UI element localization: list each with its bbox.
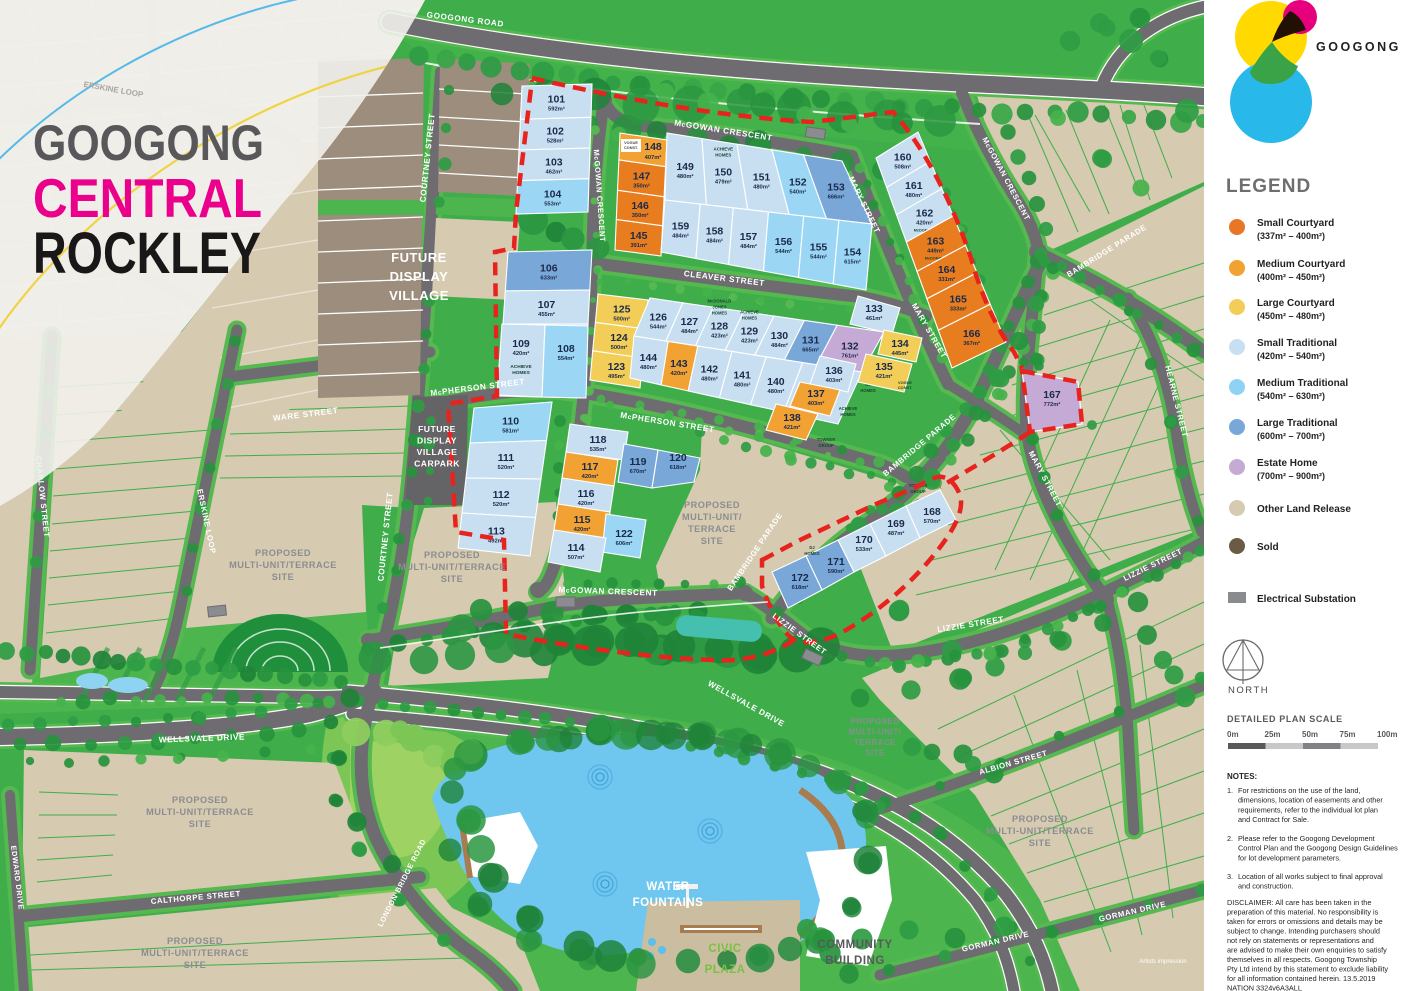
svg-text:preparation of this material.: preparation of this material. No respons… <box>1227 908 1379 917</box>
svg-text:123: 123 <box>608 361 626 373</box>
svg-text:129: 129 <box>741 325 759 337</box>
svg-text:148: 148 <box>644 141 662 153</box>
svg-text:111: 111 <box>498 452 515 464</box>
svg-text:ACHIEVE: ACHIEVE <box>839 406 858 411</box>
svg-text:153: 153 <box>827 182 845 194</box>
svg-text:2.: 2. <box>1227 834 1233 843</box>
svg-text:McDONALD: McDONALD <box>708 299 732 304</box>
svg-text:520m²: 520m² <box>498 464 515 471</box>
svg-text:ACHIEVE: ACHIEVE <box>510 364 532 370</box>
svg-text:are advised to make their own: are advised to make their own enquiries … <box>1227 946 1387 955</box>
svg-text:HOMES: HOMES <box>742 315 758 320</box>
svg-text:131: 131 <box>802 335 820 347</box>
svg-text:(600m² – 700m²): (600m² – 700m²) <box>1257 431 1325 441</box>
svg-text:SITE: SITE <box>701 536 723 546</box>
svg-text:and Contract for Sale.: and Contract for Sale. <box>1238 815 1309 824</box>
svg-text:108: 108 <box>557 343 575 355</box>
svg-text:127: 127 <box>681 316 699 328</box>
svg-text:BUILDING: BUILDING <box>825 955 885 967</box>
svg-text:DETAILED PLAN SCALE: DETAILED PLAN SCALE <box>1227 714 1343 724</box>
svg-text:403m²: 403m² <box>826 377 843 384</box>
svg-text:500m²: 500m² <box>611 344 628 351</box>
svg-text:ACHIEVE: ACHIEVE <box>740 309 759 314</box>
svg-text:GROUP: GROUP <box>910 489 926 494</box>
svg-text:142: 142 <box>701 364 719 376</box>
svg-text:420m²: 420m² <box>916 219 933 226</box>
svg-text:137: 137 <box>807 388 825 400</box>
svg-text:134: 134 <box>891 338 909 350</box>
svg-text:(540m² – 630m²): (540m² – 630m²) <box>1257 391 1325 401</box>
svg-text:423m²: 423m² <box>741 337 758 344</box>
svg-text:100m: 100m <box>1377 730 1397 739</box>
svg-text:166: 166 <box>963 328 981 340</box>
svg-text:500m²: 500m² <box>613 315 630 322</box>
svg-text:ROCKLEY: ROCKLEY <box>33 221 261 286</box>
svg-text:535m²: 535m² <box>590 446 607 453</box>
svg-text:151: 151 <box>753 172 771 184</box>
svg-text:VILLAGE: VILLAGE <box>417 447 458 457</box>
svg-text:(450m² – 480m²): (450m² – 480m²) <box>1257 311 1325 321</box>
svg-text:taken for errors or omissions: taken for errors or omissions and detail… <box>1227 917 1383 926</box>
svg-text:484m²: 484m² <box>706 238 723 245</box>
svg-text:420m²: 420m² <box>578 500 595 507</box>
svg-text:462m²: 462m² <box>546 168 563 175</box>
svg-text:PROPOSED: PROPOSED <box>167 936 223 946</box>
svg-text:Artists impression: Artists impression <box>1139 959 1186 965</box>
svg-text:VILLAGE: VILLAGE <box>389 288 449 303</box>
svg-text:110: 110 <box>502 415 519 427</box>
svg-text:544m²: 544m² <box>775 248 792 255</box>
svg-text:MULTI-UNIT/TERRACE: MULTI-UNIT/TERRACE <box>229 560 337 570</box>
svg-text:162: 162 <box>916 207 934 219</box>
svg-text:WATER: WATER <box>646 881 689 893</box>
svg-text:CENTRAL: CENTRAL <box>33 167 262 229</box>
svg-text:570m²: 570m² <box>924 518 941 525</box>
svg-text:479m²: 479m² <box>715 178 732 185</box>
svg-text:553m²: 553m² <box>544 200 561 207</box>
svg-text:423m²: 423m² <box>711 333 728 340</box>
svg-text:533m²: 533m² <box>856 546 873 553</box>
svg-text:TERRACE: TERRACE <box>688 524 736 534</box>
svg-text:(700m² – 900m²): (700m² – 900m²) <box>1257 471 1325 481</box>
svg-text:(337m² – 400m²): (337m² – 400m²) <box>1257 231 1325 241</box>
svg-text:124: 124 <box>610 332 628 344</box>
svg-text:50m: 50m <box>1302 730 1318 739</box>
svg-text:170: 170 <box>855 534 873 546</box>
svg-text:156: 156 <box>775 236 793 248</box>
svg-text:480m²: 480m² <box>753 184 770 191</box>
svg-text:544m²: 544m² <box>810 253 827 260</box>
svg-text:HOMES: HOMES <box>512 370 530 376</box>
svg-text:146: 146 <box>631 200 649 212</box>
svg-text:480m²: 480m² <box>734 382 751 389</box>
svg-text:152: 152 <box>789 176 807 188</box>
svg-text:116: 116 <box>578 488 595 500</box>
svg-text:420m²: 420m² <box>582 473 599 480</box>
svg-text:103: 103 <box>545 156 563 168</box>
svg-text:126: 126 <box>649 311 667 323</box>
svg-text:143: 143 <box>670 358 688 370</box>
svg-text:HOMES: HOMES <box>860 388 876 393</box>
svg-text:JONES: JONES <box>712 305 726 310</box>
svg-text:DJ: DJ <box>809 545 815 550</box>
svg-text:164: 164 <box>938 264 956 276</box>
svg-text:484m²: 484m² <box>740 243 757 250</box>
svg-text:MULTI-UNIT/TERRACE: MULTI-UNIT/TERRACE <box>986 826 1094 836</box>
svg-text:484m²: 484m² <box>672 233 689 240</box>
svg-text:480m²: 480m² <box>905 192 922 199</box>
svg-text:420m²: 420m² <box>574 526 591 533</box>
svg-text:Please refer to the Googong De: Please refer to the Googong Development <box>1238 834 1375 843</box>
svg-text:135: 135 <box>875 361 893 373</box>
svg-text:507m²: 507m² <box>568 554 585 561</box>
svg-text:449m²: 449m² <box>927 248 944 255</box>
svg-text:SITE: SITE <box>441 574 463 584</box>
svg-text:350m²: 350m² <box>632 212 649 219</box>
svg-text:391m²: 391m² <box>630 242 647 249</box>
svg-text:633m²: 633m² <box>540 275 557 282</box>
svg-text:420m²: 420m² <box>671 370 688 377</box>
svg-text:HOMES: HOMES <box>712 311 728 316</box>
svg-text:0m: 0m <box>1227 730 1239 739</box>
svg-text:445m²: 445m² <box>892 350 909 357</box>
svg-text:149: 149 <box>676 161 694 173</box>
svg-text:PLAZA: PLAZA <box>705 964 746 976</box>
svg-text:132: 132 <box>841 341 859 353</box>
svg-text:138: 138 <box>783 412 801 424</box>
svg-text:508m²: 508m² <box>894 164 911 171</box>
svg-text:117: 117 <box>582 461 599 473</box>
svg-text:HOMES: HOMES <box>840 412 856 417</box>
svg-text:104: 104 <box>544 188 562 200</box>
svg-text:For restrictions on the use of: For restrictions on the use of the land, <box>1238 786 1361 795</box>
svg-text:PROPOSED: PROPOSED <box>850 717 899 726</box>
svg-text:HOMES: HOMES <box>715 152 731 157</box>
svg-text:Pty Ltd intend by this stateme: Pty Ltd intend by this statement to excl… <box>1227 965 1388 974</box>
svg-text:159: 159 <box>672 221 690 233</box>
svg-text:MULTI-UNIT/TERRACE: MULTI-UNIT/TERRACE <box>146 807 254 817</box>
svg-text:495m²: 495m² <box>608 373 625 380</box>
svg-text:420m²: 420m² <box>513 350 530 357</box>
svg-text:331m²: 331m² <box>938 276 955 283</box>
svg-text:TERRACE: TERRACE <box>854 738 896 747</box>
svg-text:107: 107 <box>538 299 556 311</box>
svg-text:615m²: 615m² <box>844 259 861 266</box>
svg-text:for lot development parameters: for lot development parameters. <box>1238 853 1341 862</box>
svg-text:ACHIEVE: ACHIEVE <box>714 146 734 151</box>
svg-text:618m²: 618m² <box>670 464 687 471</box>
svg-text:520m²: 520m² <box>493 501 510 508</box>
svg-text:MULTI-UNIT/TERRACE: MULTI-UNIT/TERRACE <box>398 562 506 572</box>
svg-text:171: 171 <box>827 556 845 568</box>
svg-text:VOGUE: VOGUE <box>624 141 638 145</box>
svg-text:172: 172 <box>791 572 809 584</box>
svg-text:147: 147 <box>633 170 651 182</box>
svg-text:NATION 3324v6A3ALL: NATION 3324v6A3ALL <box>1227 984 1302 991</box>
svg-text:NOTES:: NOTES: <box>1227 772 1257 781</box>
svg-text:not rely on statements or repr: not rely on statements or representation… <box>1227 936 1374 945</box>
svg-text:528m²: 528m² <box>547 138 564 145</box>
svg-text:MULTI-UNIT/TERRACE: MULTI-UNIT/TERRACE <box>141 948 249 958</box>
svg-text:160: 160 <box>894 152 912 164</box>
svg-text:106: 106 <box>540 263 558 275</box>
svg-text:GROUP: GROUP <box>818 443 834 448</box>
svg-text:461m²: 461m² <box>866 315 883 322</box>
svg-text:118: 118 <box>590 434 607 446</box>
svg-text:(400m² – 450m²): (400m² – 450m²) <box>1257 272 1325 282</box>
svg-text:DISPLAY: DISPLAY <box>390 269 449 284</box>
svg-text:140: 140 <box>767 376 785 388</box>
svg-text:480m²: 480m² <box>701 376 718 383</box>
svg-text:128: 128 <box>711 321 729 333</box>
svg-text:SITE: SITE <box>1029 838 1051 848</box>
svg-text:581m²: 581m² <box>502 427 519 434</box>
svg-text:GOOGONG: GOOGONG <box>1316 40 1401 54</box>
svg-text:requirements, refer to the ind: requirements, refer to the individual lo… <box>1238 805 1378 814</box>
svg-text:480m²: 480m² <box>640 364 657 371</box>
svg-text:SITE: SITE <box>189 819 211 829</box>
svg-text:CIVIC: CIVIC <box>708 943 741 955</box>
svg-text:540m²: 540m² <box>789 188 806 195</box>
svg-text:115: 115 <box>574 514 591 526</box>
svg-text:Estate Home: Estate Home <box>1257 458 1318 469</box>
svg-text:3.: 3. <box>1227 872 1233 881</box>
svg-text:125: 125 <box>613 303 631 315</box>
svg-text:dimensions, location of easeme: dimensions, location of easements and ot… <box>1238 796 1383 805</box>
svg-text:CARPARK: CARPARK <box>414 459 460 469</box>
svg-text:421m²: 421m² <box>784 424 801 431</box>
svg-text:161: 161 <box>905 180 923 192</box>
svg-text:155: 155 <box>810 241 828 253</box>
svg-text:DISCLAIMER: All care has been: DISCLAIMER: All care has been taken in t… <box>1227 898 1371 907</box>
svg-text:119: 119 <box>630 456 647 468</box>
svg-text:PROPOSED: PROPOSED <box>684 500 740 510</box>
svg-text:618m²: 618m² <box>792 584 809 591</box>
svg-text:403m²: 403m² <box>808 400 825 407</box>
svg-text:670m²: 670m² <box>630 468 647 475</box>
svg-text:CONST.: CONST. <box>898 385 912 390</box>
svg-text:HOMES: HOMES <box>804 551 820 556</box>
svg-text:666m²: 666m² <box>828 194 845 201</box>
svg-text:168: 168 <box>923 506 941 518</box>
svg-text:455m²: 455m² <box>538 311 555 318</box>
svg-text:167: 167 <box>1043 389 1061 401</box>
svg-text:Location of all works subject: Location of all works subject to final a… <box>1238 872 1383 881</box>
svg-text:SITE: SITE <box>272 572 294 582</box>
svg-text:FOUNTAINS: FOUNTAINS <box>633 897 704 909</box>
svg-text:114: 114 <box>568 542 585 554</box>
svg-text:75m: 75m <box>1340 730 1356 739</box>
svg-text:606m²: 606m² <box>616 540 633 547</box>
svg-text:484m²: 484m² <box>771 342 788 349</box>
svg-text:CONST.: CONST. <box>624 146 638 150</box>
svg-text:Small Traditional: Small Traditional <box>1257 338 1337 349</box>
svg-text:590m²: 590m² <box>828 568 845 575</box>
svg-text:421m²: 421m² <box>876 373 893 380</box>
svg-text:136: 136 <box>825 365 843 377</box>
svg-text:Other Land Release: Other Land Release <box>1257 504 1351 515</box>
svg-text:101: 101 <box>548 94 566 106</box>
svg-text:PROPOSED: PROPOSED <box>255 548 311 558</box>
svg-text:NORTH: NORTH <box>1228 685 1269 696</box>
svg-text:subject to change. Intending p: subject to change. Intending purchasers … <box>1227 927 1380 936</box>
svg-text:772m²: 772m² <box>1044 401 1061 408</box>
svg-text:PROPOSED: PROPOSED <box>424 550 480 560</box>
svg-text:158: 158 <box>706 226 724 238</box>
svg-text:112: 112 <box>493 489 510 501</box>
svg-text:PROPOSED: PROPOSED <box>172 795 228 805</box>
svg-text:163: 163 <box>927 236 945 248</box>
svg-text:133: 133 <box>865 303 883 315</box>
svg-text:PROPOSED: PROPOSED <box>1012 814 1068 824</box>
svg-text:Control Plan and the Googong D: Control Plan and the Googong Design Guid… <box>1238 844 1398 853</box>
svg-text:TOWNER: TOWNER <box>817 437 836 442</box>
svg-text:GOOGONG: GOOGONG <box>33 115 264 171</box>
svg-text:122: 122 <box>615 528 633 540</box>
svg-text:407m²: 407m² <box>645 154 662 161</box>
svg-text:333m²: 333m² <box>950 306 967 313</box>
svg-text:165: 165 <box>949 294 967 306</box>
svg-text:367m²: 367m² <box>963 340 980 347</box>
svg-text:150: 150 <box>715 166 733 178</box>
svg-text:154: 154 <box>844 247 862 259</box>
svg-text:484m²: 484m² <box>681 328 698 335</box>
svg-text:for all information contained: for all information contained herein. 13… <box>1227 974 1375 983</box>
svg-text:Large Courtyard: Large Courtyard <box>1257 298 1335 309</box>
svg-text:141: 141 <box>733 370 751 382</box>
svg-text:169: 169 <box>887 518 905 530</box>
svg-text:25m: 25m <box>1265 730 1281 739</box>
svg-text:and construction.: and construction. <box>1238 882 1294 891</box>
svg-text:120: 120 <box>669 452 687 464</box>
svg-text:480m²: 480m² <box>768 388 785 395</box>
svg-text:480m²: 480m² <box>677 173 694 180</box>
svg-text:130: 130 <box>771 330 789 342</box>
svg-text:SITE: SITE <box>865 749 885 758</box>
svg-text:Sold: Sold <box>1257 542 1279 553</box>
svg-text:DISPLAY: DISPLAY <box>417 436 457 446</box>
svg-text:Medium Traditional: Medium Traditional <box>1257 378 1348 389</box>
svg-text:Small Courtyard: Small Courtyard <box>1257 218 1334 229</box>
svg-text:102: 102 <box>546 126 564 138</box>
svg-text:FUTURE: FUTURE <box>391 250 447 265</box>
svg-text:themselves in all respects. Go: themselves in all respects. Googong Town… <box>1227 955 1377 964</box>
svg-text:761m²: 761m² <box>842 353 859 360</box>
svg-text:157: 157 <box>740 231 758 243</box>
svg-text:544m²: 544m² <box>650 323 667 330</box>
svg-text:554m²: 554m² <box>558 355 575 362</box>
svg-text:FUTURE: FUTURE <box>418 424 456 434</box>
svg-text:MULTI-UNIT/: MULTI-UNIT/ <box>682 512 742 522</box>
svg-text:350m²: 350m² <box>633 182 650 189</box>
svg-text:1.: 1. <box>1227 786 1233 795</box>
svg-text:592m²: 592m² <box>548 106 565 113</box>
svg-text:Medium Courtyard: Medium Courtyard <box>1257 259 1345 270</box>
svg-text:Electrical Substation: Electrical Substation <box>1257 594 1356 605</box>
svg-text:(420m² – 540m²): (420m² – 540m²) <box>1257 351 1325 361</box>
svg-text:MULTI-UNIT/: MULTI-UNIT/ <box>849 728 902 737</box>
svg-text:SITE: SITE <box>184 960 206 970</box>
svg-text:487m²: 487m² <box>888 530 905 537</box>
svg-text:144: 144 <box>640 352 658 364</box>
svg-text:COMMUNITY: COMMUNITY <box>817 939 892 951</box>
svg-text:109: 109 <box>512 338 530 350</box>
svg-text:LEGEND: LEGEND <box>1226 176 1311 197</box>
svg-text:665m²: 665m² <box>802 347 819 354</box>
svg-text:145: 145 <box>630 230 648 242</box>
svg-text:Large Traditional: Large Traditional <box>1257 418 1338 429</box>
